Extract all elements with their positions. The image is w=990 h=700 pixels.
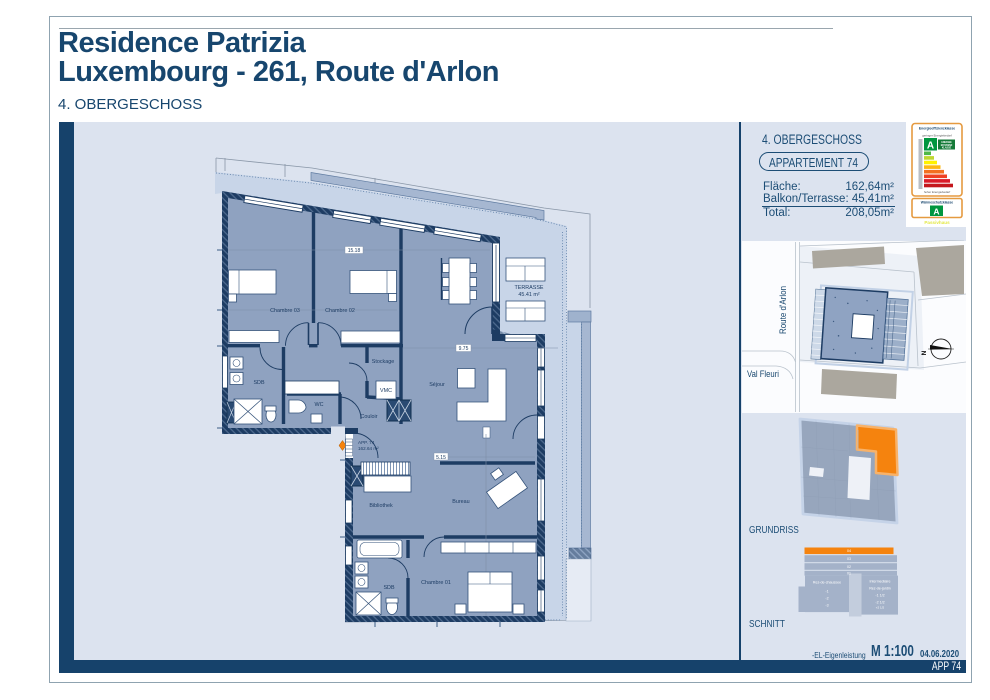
svg-text:5.15: 5.15 [436,455,446,461]
svg-text:Route d'Arlon: Route d'Arlon [778,286,789,334]
svg-text:-2: -2 [825,597,828,601]
svg-text:Chambre 02: Chambre 02 [325,308,355,314]
svg-text:-1: -1 [825,590,828,594]
svg-text:ENERGIE: ENERGIE [941,142,952,144]
svg-text:9.75: 9.75 [459,346,469,352]
svg-text:03: 03 [847,557,851,561]
svg-text:N: N [921,350,928,355]
svg-text:-2 1/2: -2 1/2 [875,601,884,605]
svg-text:-1 1/2: -1 1/2 [875,594,884,598]
svg-text:VMC: VMC [380,388,392,394]
svg-text:geringer Energiebedarf: geringer Energiebedarf [922,134,952,138]
svg-text:EFFIZIENZ: EFFIZIENZ [941,145,953,147]
svg-text:Wärmeschutzklasse: Wärmeschutzklasse [921,201,954,205]
svg-text:Rez-de-jardin: Rez-de-jardin [869,587,891,591]
svg-text:hoher Energiebedarf: hoher Energiebedarf [924,190,951,194]
svg-text:02: 02 [847,565,851,569]
svg-text:TERRASSE: TERRASSE [514,285,543,291]
svg-text:Couloir: Couloir [360,414,377,420]
svg-text:Intermediaire: Intermediaire [870,580,891,584]
svg-text:15.18: 15.18 [348,248,361,254]
svg-text:04: 04 [847,549,851,553]
svg-text:APP. 74: APP. 74 [358,440,375,445]
svg-text:Bureau: Bureau [452,499,469,505]
svg-text:Rez-de-chaussee: Rez-de-chaussee [813,581,841,585]
svg-text:Passivhaus: Passivhaus [924,220,950,225]
svg-text:45.41 m²: 45.41 m² [518,292,539,298]
svg-text:SDB: SDB [253,380,264,386]
svg-text:SDB: SDB [383,585,394,591]
svg-text:Chambre 03: Chambre 03 [270,308,300,314]
svg-text:+2 1/2: +2 1/2 [876,606,885,610]
svg-text:KLASSE: KLASSE [942,147,952,150]
svg-text:Séjour: Séjour [429,382,445,388]
svg-text:A: A [927,141,934,152]
svg-text:Energieeffizienzklasse: Energieeffizienzklasse [919,127,955,131]
svg-text:162.64 m²: 162.64 m² [358,446,379,451]
svg-text:-3: -3 [825,604,828,608]
svg-text:01: 01 [847,572,851,576]
svg-text:Chambre 01: Chambre 01 [421,580,451,586]
svg-text:Stockage: Stockage [372,359,394,365]
svg-text:Val Fleuri: Val Fleuri [747,369,779,380]
svg-text:WC: WC [315,402,324,408]
svg-text:A: A [933,207,939,217]
svg-text:Bibliothek: Bibliothek [369,503,393,509]
